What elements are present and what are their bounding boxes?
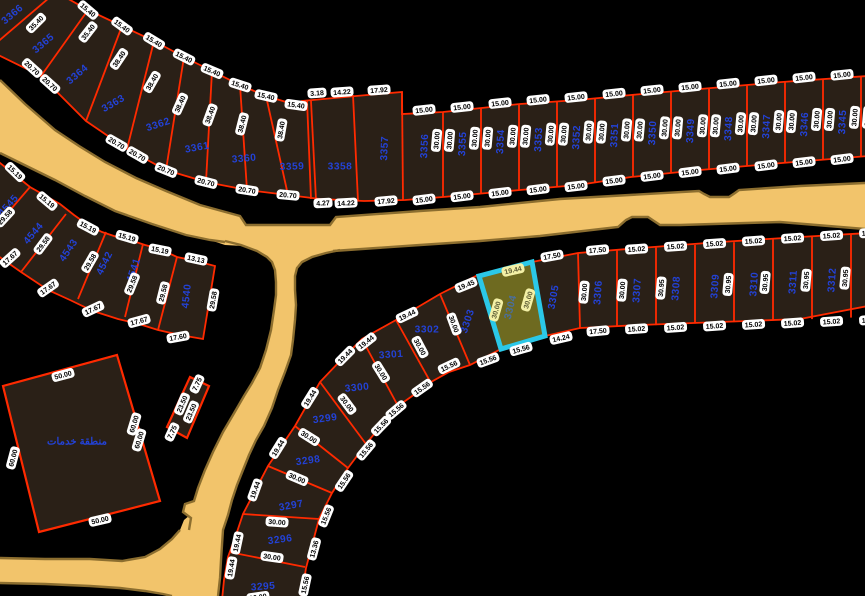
svg-text:3352: 3352 <box>571 125 583 150</box>
svg-text:15.02: 15.02 <box>862 317 865 325</box>
svg-text:3355: 3355 <box>457 131 469 156</box>
svg-text:3354: 3354 <box>495 129 507 154</box>
svg-text:17.92: 17.92 <box>370 87 388 95</box>
svg-text:3309: 3309 <box>709 274 722 299</box>
svg-text:3311: 3311 <box>787 270 800 295</box>
svg-text:3306: 3306 <box>592 280 605 305</box>
svg-text:3308: 3308 <box>670 276 683 301</box>
svg-text:3349: 3349 <box>685 118 697 143</box>
svg-text:3307: 3307 <box>631 278 644 303</box>
svg-text:15.02: 15.02 <box>667 324 685 332</box>
svg-text:3359: 3359 <box>280 161 305 173</box>
svg-text:3310: 3310 <box>748 271 761 296</box>
svg-text:3348: 3348 <box>723 116 735 141</box>
svg-text:4.27: 4.27 <box>316 200 330 208</box>
svg-text:15.02: 15.02 <box>862 230 865 238</box>
svg-text:3346: 3346 <box>799 112 811 137</box>
svg-text:3360: 3360 <box>231 153 257 166</box>
svg-text:15.02: 15.02 <box>823 232 841 240</box>
svg-text:15.02: 15.02 <box>706 240 724 248</box>
svg-text:14.22: 14.22 <box>337 200 355 208</box>
svg-text:3350: 3350 <box>647 120 659 145</box>
svg-text:3312: 3312 <box>826 267 839 292</box>
svg-text:15.02: 15.02 <box>745 321 763 329</box>
svg-text:3357: 3357 <box>379 136 391 161</box>
svg-text:15.02: 15.02 <box>667 243 685 251</box>
svg-text:3345: 3345 <box>837 109 849 134</box>
svg-text:3347: 3347 <box>761 114 773 139</box>
svg-text:3.18: 3.18 <box>310 90 324 98</box>
svg-text:15.02: 15.02 <box>745 238 763 246</box>
svg-text:30.00: 30.00 <box>268 519 286 527</box>
svg-text:3358: 3358 <box>328 162 353 173</box>
svg-text:15.02: 15.02 <box>823 318 841 326</box>
svg-text:15.02: 15.02 <box>628 246 646 254</box>
svg-text:14.22: 14.22 <box>333 89 351 97</box>
svg-text:15.02: 15.02 <box>784 235 802 243</box>
svg-text:3301: 3301 <box>378 349 403 362</box>
svg-text:3353: 3353 <box>533 127 545 152</box>
svg-text:منطقة خدمات: منطقة خدمات <box>47 437 107 448</box>
svg-text:15.02: 15.02 <box>706 323 724 331</box>
svg-text:15.02: 15.02 <box>784 320 802 328</box>
svg-text:3302: 3302 <box>415 325 440 336</box>
svg-text:3351: 3351 <box>609 123 621 148</box>
svg-text:15.02: 15.02 <box>628 326 646 334</box>
svg-text:3356: 3356 <box>419 133 431 158</box>
